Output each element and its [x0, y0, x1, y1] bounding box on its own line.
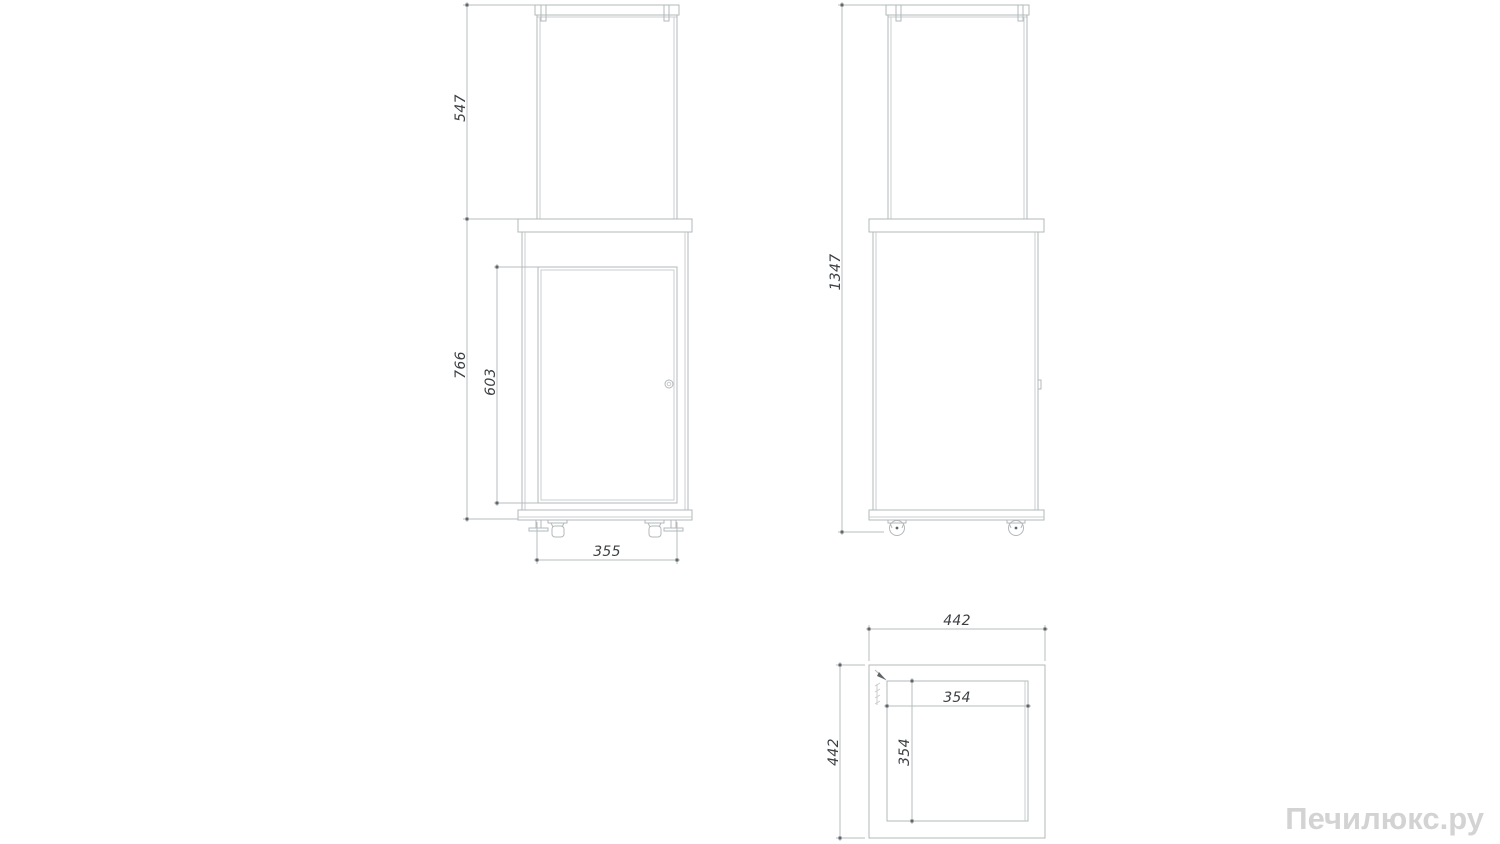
cap-clip-right: [664, 5, 669, 21]
base-plate-side: [869, 510, 1044, 520]
dim-label-door-height: 603: [483, 368, 499, 396]
caster-left: [548, 520, 567, 537]
leveling-foot-right: [664, 520, 683, 531]
body-inner-side: [876, 232, 1035, 510]
dim-label-inner-depth: 354: [897, 738, 913, 766]
leveling-foot-left: [529, 520, 548, 531]
cap-clip-left-side: [896, 5, 901, 21]
ext-lines-left: [463, 5, 535, 519]
dim-label-inner-width: 354: [943, 690, 971, 706]
watermark-logo: Печилюкс.ру: [1285, 801, 1484, 836]
glass-panel-inner: [540, 17, 674, 219]
caster-right-side: [1007, 520, 1025, 536]
glass-panel-outer: [537, 15, 677, 219]
ext-lines-door: [494, 267, 538, 503]
front-view: [518, 5, 692, 537]
corner-detail-marker: [875, 670, 886, 705]
door-lock-icon: [665, 380, 673, 388]
caster-left-side: [888, 520, 906, 536]
caster-right: [645, 520, 664, 537]
glass-top-cap-side: [886, 5, 1029, 21]
body-inner: [525, 232, 685, 510]
cap-plate: [535, 5, 679, 15]
dim-label-body-width: 355: [593, 544, 621, 560]
dim-label-body-height: 766: [453, 351, 469, 379]
drawing-canvas: 547 766 603 355: [0, 0, 1500, 844]
ext-lines-outer-w: [869, 625, 1045, 661]
glass-panel-outer-side: [888, 15, 1027, 219]
ext-lines-total: [838, 5, 886, 532]
cap-clip-left: [541, 5, 546, 21]
cap-plate-side: [886, 5, 1029, 15]
glass-panel-inner-side: [891, 17, 1024, 219]
glass-top-cap: [535, 5, 679, 21]
side-dimensions: [838, 2, 886, 535]
front-dimensions: [463, 2, 680, 564]
body-outer-side: [873, 232, 1038, 510]
dim-label-outer-width: 442: [943, 613, 971, 629]
top-plate-side: [869, 219, 1044, 232]
door: [538, 267, 677, 503]
cap-clip-right-side: [1018, 5, 1023, 21]
technical-drawing: 547 766 603 355: [0, 0, 1500, 844]
door-handle-side: [1038, 380, 1041, 389]
door-inner-frame: [541, 270, 674, 500]
dim-label-glass-height: 547: [453, 94, 469, 122]
top-dimensions: [836, 625, 1048, 841]
dim-label-outer-depth: 442: [826, 738, 842, 766]
top-plate: [518, 219, 692, 232]
body-outer: [522, 232, 688, 510]
base-plate: [518, 510, 692, 520]
side-view: [869, 5, 1044, 536]
dim-label-total-height: 1347: [828, 254, 844, 291]
